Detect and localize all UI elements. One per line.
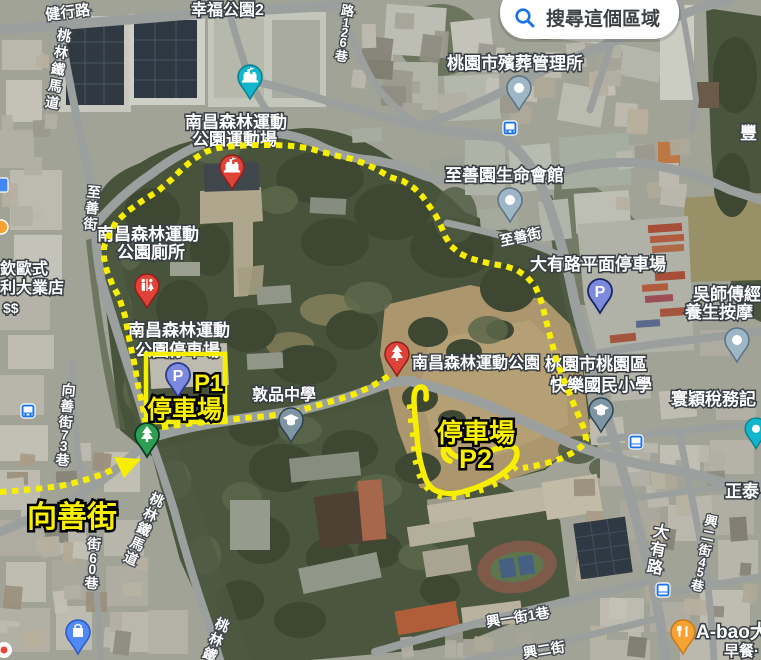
svg-text:大有路平面停車場: 大有路平面停車場: [530, 254, 666, 274]
svg-text:P1: P1: [194, 370, 223, 397]
svg-text:南昌森林運動: 南昌森林運動: [128, 320, 230, 340]
svg-text:桃園市殯葬管理所: 桃園市殯葬管理所: [447, 53, 583, 73]
svg-text:$$: $$: [3, 300, 19, 316]
svg-text:P: P: [173, 368, 184, 385]
svg-text:搜尋這個區域: 搜尋這個區域: [546, 7, 660, 30]
svg-text:早餐·: 早餐·: [724, 642, 759, 660]
svg-text:寰穎稅務記: 寰穎稅務記: [670, 389, 756, 409]
svg-text:正泰: 正泰: [725, 481, 760, 501]
svg-text:敦品中學: 敦品中學: [252, 385, 316, 404]
svg-text:吳師傅經: 吳師傅經: [693, 284, 761, 304]
svg-text:公園廁所: 公園廁所: [117, 242, 185, 262]
svg-text:利大業店: 利大業店: [0, 278, 64, 297]
svg-text:南昌森林運動公園: 南昌森林運動公園: [412, 353, 540, 372]
svg-text:向善街: 向善街: [27, 501, 117, 534]
svg-text:P2: P2: [459, 444, 492, 474]
svg-text:至善園生命會館: 至善園生命會館: [445, 165, 564, 185]
svg-text:養生按摩: 養生按摩: [684, 302, 753, 322]
svg-text:南昌森林運動: 南昌森林運動: [185, 112, 287, 132]
svg-text:豐: 豐: [740, 123, 757, 143]
svg-text:幸福公園2: 幸福公園2: [191, 0, 264, 19]
svg-text:A-bao大: A-bao大: [696, 620, 761, 643]
svg-text:P: P: [595, 284, 606, 301]
svg-text:停車場: 停車場: [147, 395, 222, 424]
svg-text:欽歐式: 欽歐式: [0, 259, 48, 278]
